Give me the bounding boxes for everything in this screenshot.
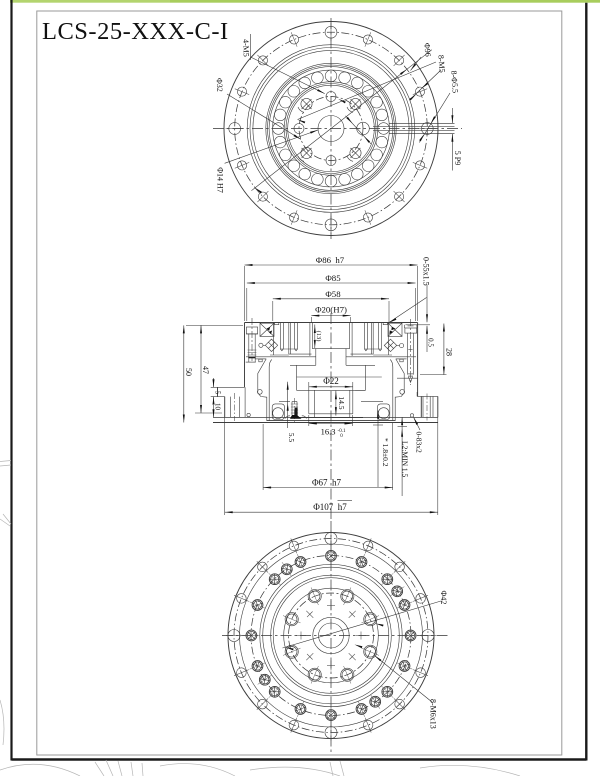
svg-text:Φ58: Φ58 <box>325 289 341 299</box>
svg-text:0-55x1.5: 0-55x1.5 <box>422 257 431 286</box>
svg-text:Φ107 h7: Φ107 h7 <box>313 502 347 512</box>
svg-text:14.5: 14.5 <box>337 396 346 409</box>
svg-text:10: 10 <box>214 403 222 411</box>
svg-text:50: 50 <box>184 368 193 376</box>
svg-text:5 P9: 5 P9 <box>453 151 462 165</box>
svg-text:8-M6x13: 8-M6x13 <box>429 699 438 729</box>
svg-text:0.5: 0.5 <box>427 338 435 347</box>
svg-text:L2:MIN 1.5: L2:MIN 1.5 <box>401 441 410 477</box>
svg-text:Φ86 h7: Φ86 h7 <box>316 255 345 265</box>
svg-text:47: 47 <box>201 366 210 374</box>
svg-text:Φ22: Φ22 <box>323 376 339 386</box>
svg-text:(13): (13) <box>315 331 322 342</box>
svg-text:0-83x2: 0-83x2 <box>415 432 424 453</box>
svg-text:Φ32: Φ32 <box>215 78 224 92</box>
svg-text:5.5: 5.5 <box>287 433 296 443</box>
svg-text:Φ14 H7: Φ14 H7 <box>216 167 225 193</box>
svg-text:16.3: 16.3 <box>321 427 336 437</box>
svg-text:Φ96: Φ96 <box>423 43 433 57</box>
svg-text:LCS-25-XXX-C-I: LCS-25-XXX-C-I <box>42 18 229 45</box>
svg-text:Φ67 h7: Φ67 h7 <box>312 478 342 488</box>
svg-text:Φ20(H7): Φ20(H7) <box>315 305 347 315</box>
svg-text:8-M5: 8-M5 <box>436 55 446 73</box>
svg-text:8-Φ5.5: 8-Φ5.5 <box>449 70 460 93</box>
svg-text:Φ42: Φ42 <box>439 591 448 605</box>
svg-text:28: 28 <box>445 348 454 356</box>
svg-text:5: 5 <box>214 391 222 395</box>
svg-text:Φ85: Φ85 <box>325 273 341 283</box>
svg-text:* 1.8±0.2: * 1.8±0.2 <box>381 438 390 467</box>
svg-text:4-M5: 4-M5 <box>241 39 251 57</box>
